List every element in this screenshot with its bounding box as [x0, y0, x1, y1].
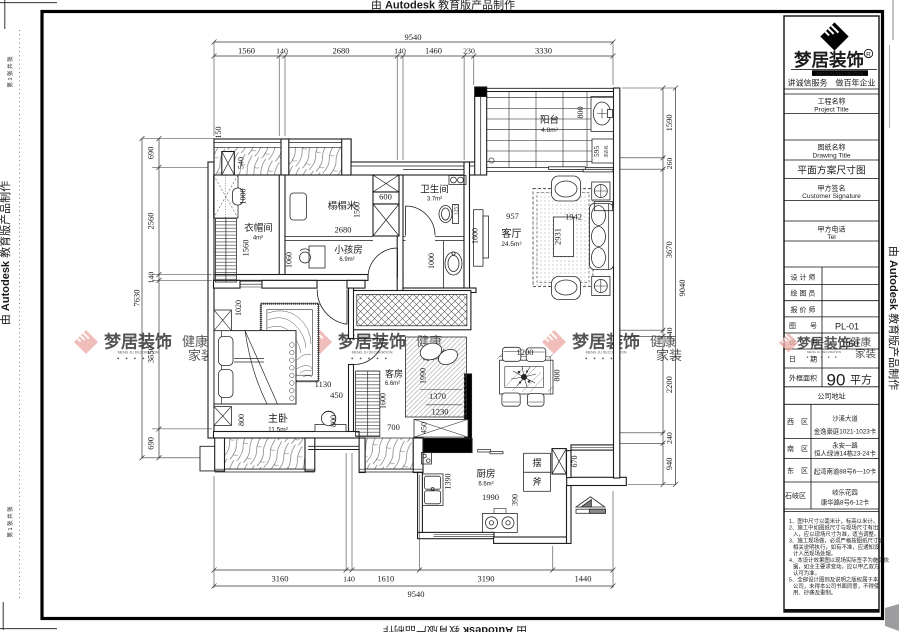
svg-text:由 Autodesk 教育版产品制作: 由 Autodesk 教育版产品制作: [887, 246, 899, 390]
svg-text:690: 690: [146, 437, 156, 450]
svg-text:康华路8号6-12卡: 康华路8号6-12卡: [821, 498, 870, 507]
svg-text:3190: 3190: [478, 574, 495, 584]
svg-text:梦居装饰: 梦居装饰: [797, 335, 851, 351]
svg-text:厨房: 厨房: [476, 468, 495, 480]
svg-text:第 1 张 共 张: 第 1 张 共 张: [6, 56, 14, 88]
svg-text:设 计 师: 设 计 师: [791, 273, 816, 282]
svg-text:公司地址: 公司地址: [818, 392, 846, 401]
svg-text:1370: 1370: [429, 391, 446, 401]
svg-text:MENG JU DECORATION: MENG JU DECORATION: [586, 351, 627, 355]
svg-text:595: 595: [592, 146, 601, 158]
svg-text:150: 150: [214, 127, 223, 139]
svg-text:4.8m²: 4.8m²: [541, 127, 558, 134]
svg-text:起湾南道88号6—10卡: 起湾南道88号6—10卡: [814, 467, 877, 476]
svg-text:6.9m²: 6.9m²: [339, 257, 354, 263]
svg-text:800: 800: [576, 107, 585, 119]
svg-text:800: 800: [329, 415, 338, 427]
svg-text:3.7m²: 3.7m²: [427, 197, 442, 203]
svg-text:2680: 2680: [335, 225, 352, 235]
svg-text:报 价 师: 报 价 师: [791, 305, 816, 314]
svg-text:健康: 健康: [850, 336, 871, 349]
svg-text:2560: 2560: [146, 213, 156, 230]
svg-text:岐乐花园: 岐乐花园: [832, 488, 858, 497]
svg-text:240: 240: [665, 432, 674, 444]
svg-text:工程名称: 工程名称: [818, 97, 846, 106]
svg-text:1253: 1253: [454, 204, 460, 215]
svg-text:图纸名称: 图纸名称: [818, 143, 846, 152]
svg-text:3670: 3670: [664, 241, 674, 258]
svg-text:2200: 2200: [664, 376, 674, 393]
svg-text:957: 957: [506, 211, 519, 221]
svg-text:1230: 1230: [432, 407, 449, 417]
svg-text:140: 140: [276, 47, 288, 56]
svg-text:阳台: 阳台: [540, 114, 559, 126]
svg-text:1990: 1990: [419, 368, 428, 384]
svg-text:140: 140: [343, 575, 355, 584]
svg-text:11.5m²: 11.5m²: [268, 427, 289, 434]
svg-text:1060: 1060: [285, 252, 294, 268]
svg-text:5、全部设计图则及说明之版权属于本: 5、全部设计图则及说明之版权属于本: [789, 576, 879, 584]
svg-text:Tel: Tel: [827, 234, 836, 241]
svg-text:斧: 斧: [532, 476, 541, 487]
svg-text:140: 140: [665, 327, 674, 339]
svg-text:金逸豪庭1021-1023卡: 金逸豪庭1021-1023卡: [814, 427, 877, 436]
svg-text:600: 600: [379, 192, 392, 202]
svg-text:入，应以现场尺寸为准，适当调整。: 入，应以现场尺寸为准，适当调整。: [793, 530, 879, 538]
svg-text:390: 390: [511, 494, 520, 506]
svg-text:由 Autodesk 教育版产品制作: 由 Autodesk 教育版产品制作: [0, 181, 12, 325]
svg-text:公司，未得本公司书面同意，不得使: 公司，未得本公司书面同意，不得使: [793, 582, 880, 590]
svg-text:甲方签名: 甲方签名: [818, 184, 846, 193]
svg-text:7630: 7630: [132, 290, 142, 307]
svg-text:3160: 3160: [272, 574, 289, 584]
svg-text:Drawing Title: Drawing Title: [812, 153, 850, 160]
svg-text:PL-01: PL-01: [835, 322, 859, 332]
svg-text:家装: 家装: [656, 348, 682, 363]
svg-text:1000: 1000: [239, 189, 248, 205]
svg-text:1560: 1560: [241, 240, 251, 257]
svg-text:健康: 健康: [182, 334, 208, 349]
svg-text:700: 700: [387, 422, 400, 432]
svg-text:平面方案尺寸图: 平面方案尺寸图: [797, 164, 866, 177]
svg-text:客房: 客房: [385, 368, 403, 379]
svg-text:1942: 1942: [565, 212, 582, 222]
svg-text:9540: 9540: [405, 32, 422, 42]
svg-text:绘 图 员: 绘 图 员: [791, 289, 816, 298]
svg-text:梦居装饰: 梦居装饰: [572, 332, 640, 352]
svg-text:1200: 1200: [517, 347, 534, 357]
svg-text:衣帽间: 衣帽间: [244, 222, 273, 234]
svg-text:MENG JU DECORATION: MENG JU DECORATION: [807, 350, 841, 354]
svg-text:450: 450: [420, 422, 429, 434]
svg-text:1000: 1000: [427, 253, 436, 269]
svg-text:甲方电话: 甲方电话: [818, 225, 846, 234]
svg-text:1020: 1020: [234, 300, 243, 316]
svg-text:梦居装饰: 梦居装饰: [794, 50, 864, 70]
svg-text:6.6m²: 6.6m²: [385, 381, 400, 387]
svg-text:卫生间: 卫生间: [420, 184, 449, 196]
svg-text:1590: 1590: [664, 114, 674, 131]
svg-text:石岐区: 石岐区: [785, 491, 806, 500]
svg-text:1990: 1990: [482, 492, 499, 502]
svg-text:24.5m²: 24.5m²: [501, 241, 522, 248]
svg-text:东 区: 东 区: [787, 466, 808, 475]
svg-text:3、施工现场做，必须严格按图纸尺寸或: 3、施工现场做，必须严格按图纸尺寸或: [789, 537, 884, 545]
svg-text:客厅: 客厅: [502, 227, 522, 240]
svg-text:认可为准。: 认可为准。: [793, 569, 820, 577]
svg-text:690: 690: [146, 147, 156, 160]
svg-text:6.6m²: 6.6m²: [478, 482, 493, 488]
svg-text:800: 800: [553, 370, 562, 382]
svg-text:Project Title: Project Title: [814, 107, 849, 114]
svg-text:平方: 平方: [850, 373, 872, 387]
svg-text:3550: 3550: [146, 346, 156, 363]
svg-text:●●●●●: ●●●●●: [806, 355, 841, 359]
svg-text:540: 540: [237, 157, 246, 169]
svg-text:南 区: 南 区: [787, 444, 808, 453]
svg-text:1440: 1440: [575, 574, 592, 584]
svg-text:140: 140: [394, 47, 406, 56]
svg-text:2931: 2931: [553, 228, 563, 245]
svg-text:●●●●●: ●●●●●: [585, 356, 627, 361]
svg-text:摆: 摆: [532, 457, 541, 468]
svg-text:外框面积: 外框面积: [789, 374, 817, 383]
svg-text:R: R: [866, 51, 871, 58]
svg-text:1560: 1560: [238, 46, 255, 56]
svg-text:MENGJU DECORATION: MENGJU DECORATION: [817, 71, 864, 76]
svg-text:9040: 9040: [677, 280, 687, 297]
svg-text:1610: 1610: [377, 574, 394, 584]
svg-text:2、施工中如图纸尺寸与现场尺寸有出: 2、施工中如图纸尺寸与现场尺寸有出: [789, 524, 878, 532]
svg-text:计人员现场处理。: 计人员现场处理。: [793, 550, 836, 558]
svg-text:1130: 1130: [315, 379, 332, 389]
svg-text:沙溪大道: 沙溪大道: [832, 414, 858, 423]
svg-text:梦居装饰: 梦居装饰: [104, 332, 172, 352]
svg-text:由 Autodesk 教育版产品制作: 由 Autodesk 教育版产品制作: [383, 624, 527, 632]
svg-text:图 号: 图 号: [789, 322, 817, 330]
svg-text:小孩房: 小孩房: [334, 244, 363, 256]
svg-text:2680: 2680: [333, 46, 350, 56]
svg-text:西 区: 西 区: [787, 418, 808, 426]
svg-text:由 Autodesk 教育版产品制作: 由 Autodesk 教育版产品制作: [371, 0, 515, 12]
svg-text:1500: 1500: [353, 202, 362, 218]
svg-text:恒人绿洲14栋23-24卡: 恒人绿洲14栋23-24卡: [814, 449, 876, 458]
svg-text:800: 800: [237, 414, 246, 426]
svg-text:90: 90: [827, 371, 846, 390]
svg-text:主卧: 主卧: [268, 412, 288, 425]
svg-text:9540: 9540: [408, 589, 425, 599]
svg-text:260: 260: [665, 158, 674, 170]
svg-text:3330: 3330: [535, 46, 552, 56]
svg-text:230: 230: [463, 47, 475, 56]
svg-text:1390: 1390: [444, 474, 453, 490]
svg-text:用、抄袭及重制。: 用、抄袭及重制。: [793, 589, 836, 597]
svg-text:1460: 1460: [425, 46, 442, 56]
svg-text:4、本设计效果图以现场实际签字为施工依: 4、本设计效果图以现场实际签字为施工依: [789, 556, 890, 564]
svg-text:家装: 家装: [855, 347, 876, 360]
svg-text:据，如业主要求变动，应以甲乙双方: 据，如业主要求变动，应以甲乙双方: [793, 563, 880, 571]
svg-text:140: 140: [147, 272, 156, 284]
svg-text:450: 450: [330, 390, 343, 400]
svg-text:讲诚信服务 做百年企业: 讲诚信服务 做百年企业: [788, 78, 876, 88]
svg-text:940: 940: [664, 458, 674, 471]
svg-text:Customer Signature: Customer Signature: [802, 193, 861, 200]
svg-text:永安一路: 永安一路: [832, 441, 858, 450]
svg-text:1、图中尺寸以毫米计，标高以米计。: 1、图中尺寸以毫米计，标高以米计。: [789, 517, 878, 525]
svg-text:第 1 张 共 张: 第 1 张 共 张: [6, 506, 14, 538]
svg-text:670: 670: [570, 456, 579, 468]
svg-text:1600: 1600: [471, 228, 480, 244]
svg-text:4m²: 4m²: [253, 236, 263, 242]
svg-text:MENG JU DECORATION: MENG JU DECORATION: [352, 351, 393, 355]
svg-text:1600: 1600: [379, 393, 388, 409]
svg-text:相关说明执行，如有不准，应通知设: 相关说明执行，如有不准，应通知设: [793, 543, 880, 551]
svg-text:洗衣机: 洗衣机: [603, 146, 609, 158]
